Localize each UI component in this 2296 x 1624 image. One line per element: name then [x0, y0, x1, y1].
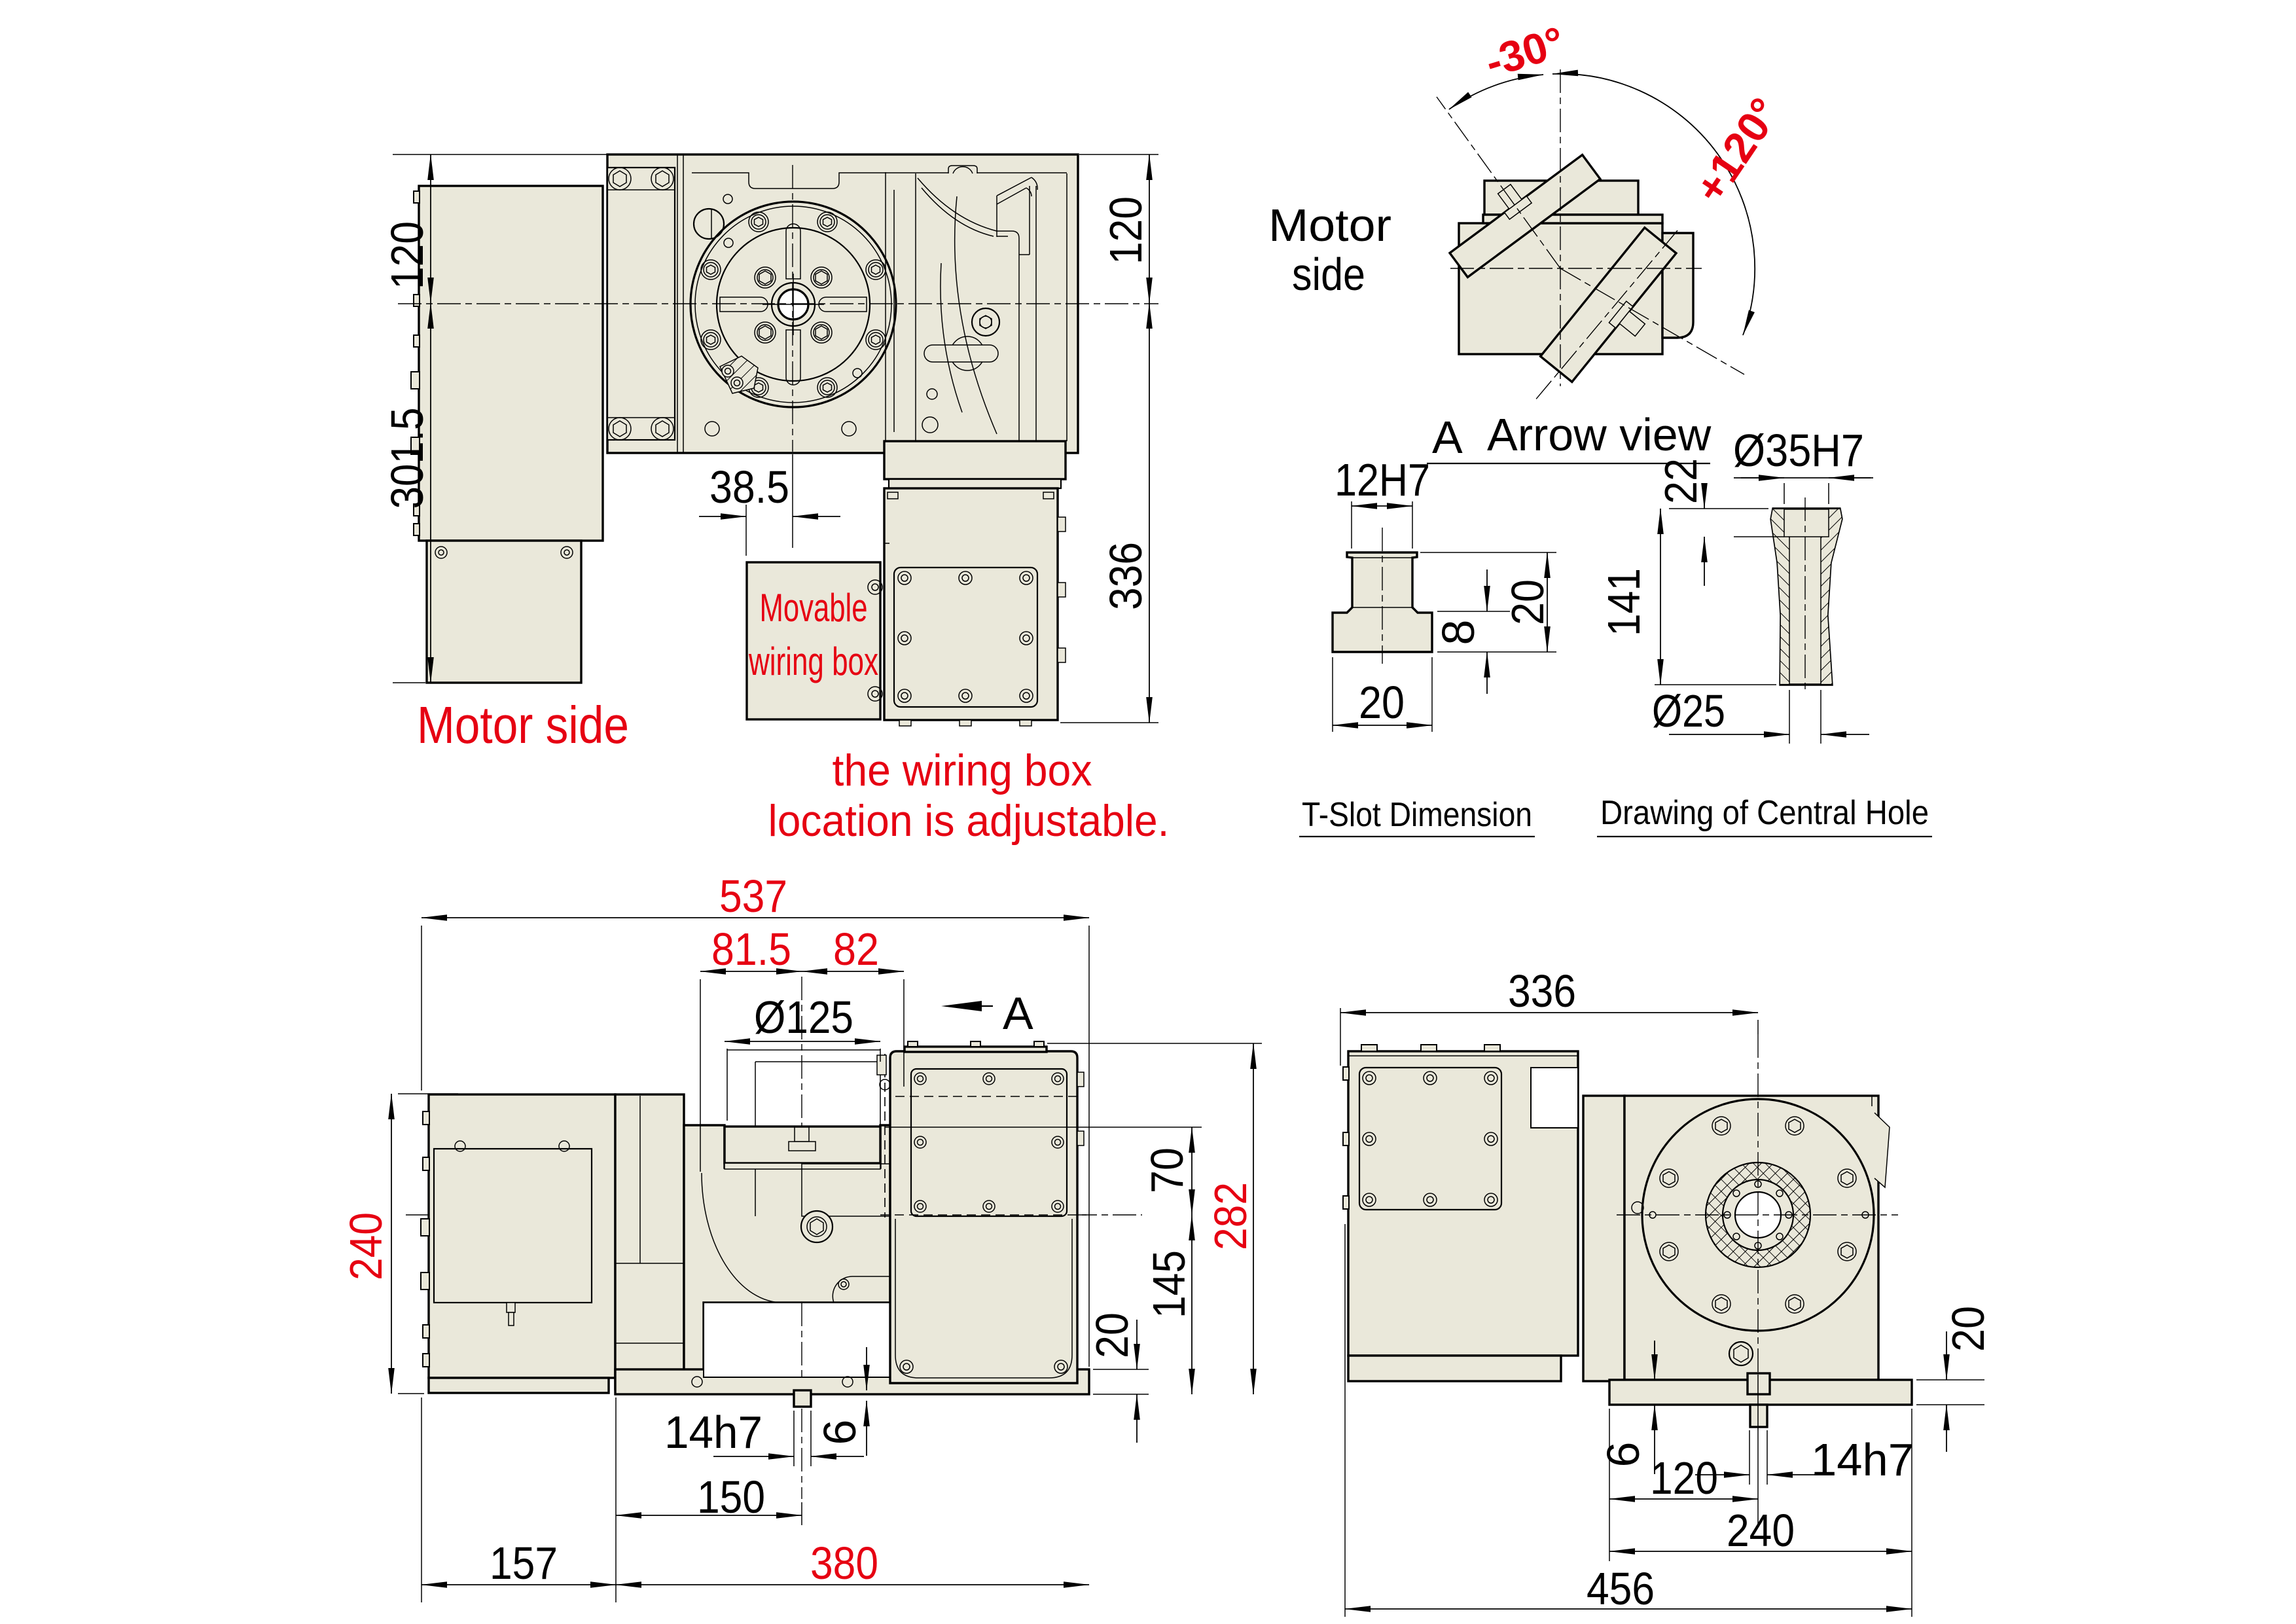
- svg-text:120: 120: [382, 221, 433, 289]
- svg-text:6: 6: [1598, 1442, 1649, 1468]
- svg-text:Motor: Motor: [1268, 200, 1391, 251]
- svg-text:336: 336: [1100, 542, 1151, 610]
- svg-text:145: 145: [1143, 1250, 1194, 1318]
- svg-text:380: 380: [810, 1538, 878, 1589]
- svg-text:14h7: 14h7: [1811, 1434, 1914, 1485]
- svg-text:the wiring box: the wiring box: [833, 746, 1092, 795]
- svg-text:240: 240: [340, 1212, 391, 1280]
- svg-text:A: A: [1432, 412, 1463, 463]
- svg-text:20: 20: [1943, 1306, 1994, 1352]
- svg-text:Ø25: Ø25: [1652, 685, 1725, 736]
- svg-text:82: 82: [833, 924, 879, 975]
- svg-text:150: 150: [697, 1471, 765, 1523]
- svg-text:81.5: 81.5: [711, 924, 791, 975]
- svg-text:336: 336: [1508, 965, 1576, 1017]
- svg-text:T-Slot Dimension: T-Slot Dimension: [1302, 796, 1532, 834]
- svg-text:14h7: 14h7: [664, 1407, 762, 1458]
- svg-text:157: 157: [490, 1538, 558, 1589]
- svg-text:141: 141: [1598, 568, 1649, 636]
- svg-text:282: 282: [1205, 1182, 1256, 1250]
- svg-text:location is adjustable.: location is adjustable.: [768, 796, 1170, 846]
- svg-text:120: 120: [1650, 1453, 1718, 1504]
- svg-text:6: 6: [814, 1420, 865, 1445]
- svg-text:Ø35H7: Ø35H7: [1733, 425, 1864, 476]
- svg-text:side: side: [1292, 249, 1365, 300]
- svg-text:20: 20: [1502, 579, 1553, 625]
- svg-text:A: A: [1003, 988, 1033, 1039]
- svg-text:12H7: 12H7: [1335, 454, 1430, 505]
- svg-text:8: 8: [1433, 620, 1484, 645]
- svg-text:wiring box: wiring box: [748, 640, 878, 683]
- svg-text:20: 20: [1086, 1312, 1138, 1358]
- svg-text:Motor side: Motor side: [417, 696, 629, 754]
- svg-text:20: 20: [1359, 677, 1405, 728]
- svg-text:456: 456: [1587, 1563, 1655, 1614]
- svg-text:301.5: 301.5: [382, 408, 433, 509]
- svg-text:Arrow view: Arrow view: [1487, 409, 1712, 460]
- svg-text:22: 22: [1655, 458, 1706, 504]
- svg-text:70: 70: [1141, 1147, 1193, 1193]
- svg-text:240: 240: [1727, 1505, 1795, 1556]
- svg-text:120: 120: [1100, 196, 1151, 264]
- svg-text:38.5: 38.5: [709, 461, 789, 513]
- svg-text:Drawing of Central Hole: Drawing of Central Hole: [1600, 794, 1929, 832]
- svg-text:Movable: Movable: [760, 586, 868, 630]
- svg-text:537: 537: [719, 871, 787, 922]
- svg-text:Ø125: Ø125: [754, 992, 853, 1043]
